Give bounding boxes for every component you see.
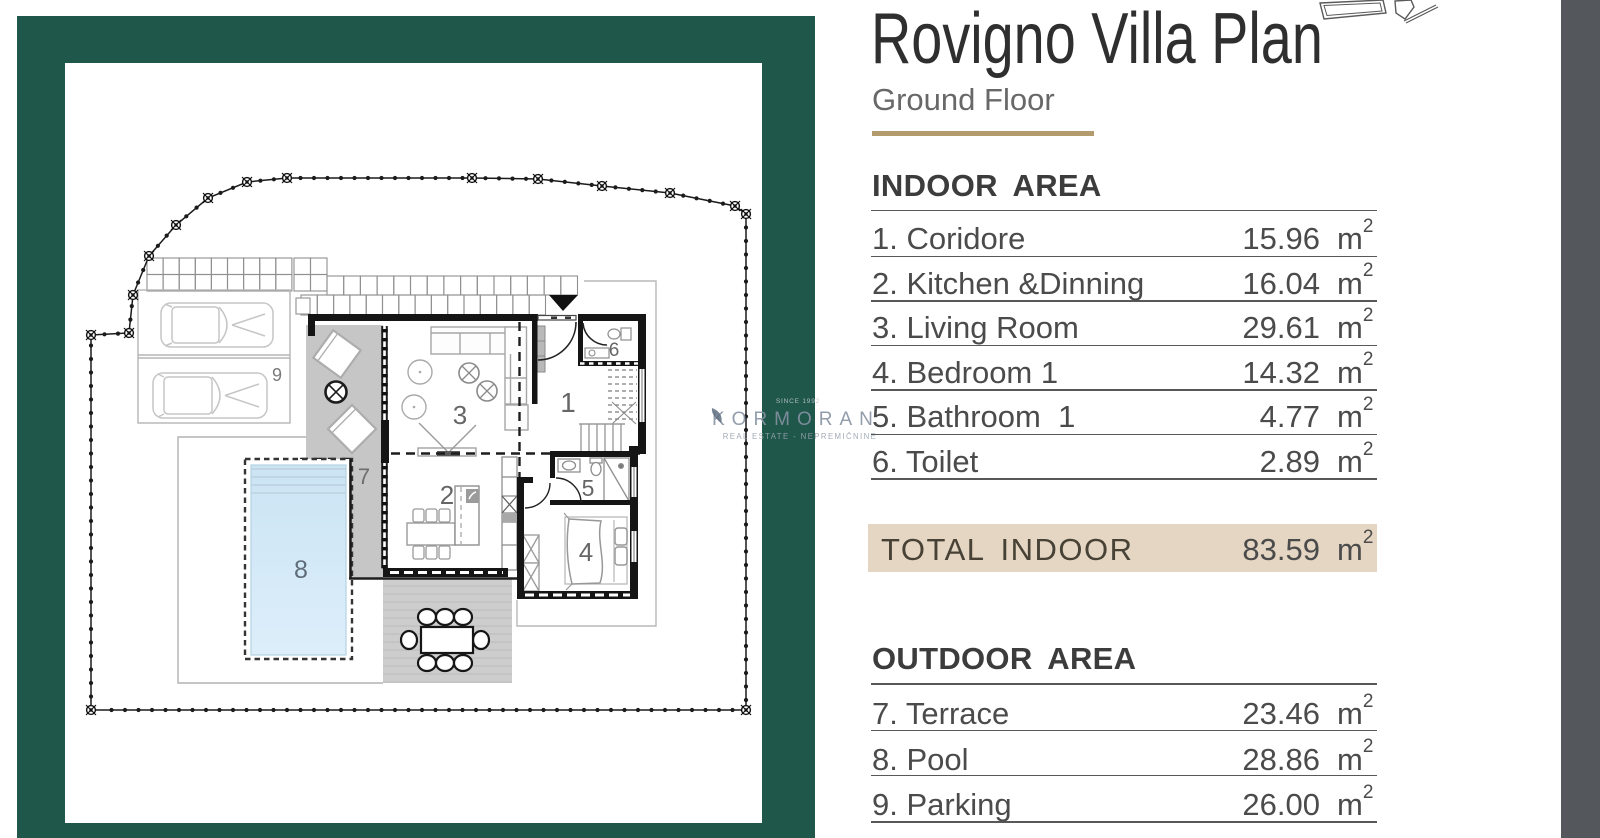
svg-text:KORMORAN: KORMORAN [712, 409, 880, 430]
svg-text:6: 6 [609, 340, 620, 361]
svg-text:1: 1 [560, 387, 576, 418]
svg-text:2: 2 [440, 480, 454, 510]
svg-text:5: 5 [582, 475, 595, 501]
svg-text:REAL ESTATE - NEPREMIČNINE: REAL ESTATE - NEPREMIČNINE [723, 432, 878, 441]
svg-text:SINCE 1992: SINCE 1992 [776, 398, 820, 405]
svg-text:4: 4 [579, 537, 593, 567]
svg-text:9: 9 [272, 365, 282, 385]
svg-text:7: 7 [358, 464, 370, 489]
svg-text:3: 3 [453, 400, 467, 430]
svg-text:8: 8 [294, 556, 308, 584]
